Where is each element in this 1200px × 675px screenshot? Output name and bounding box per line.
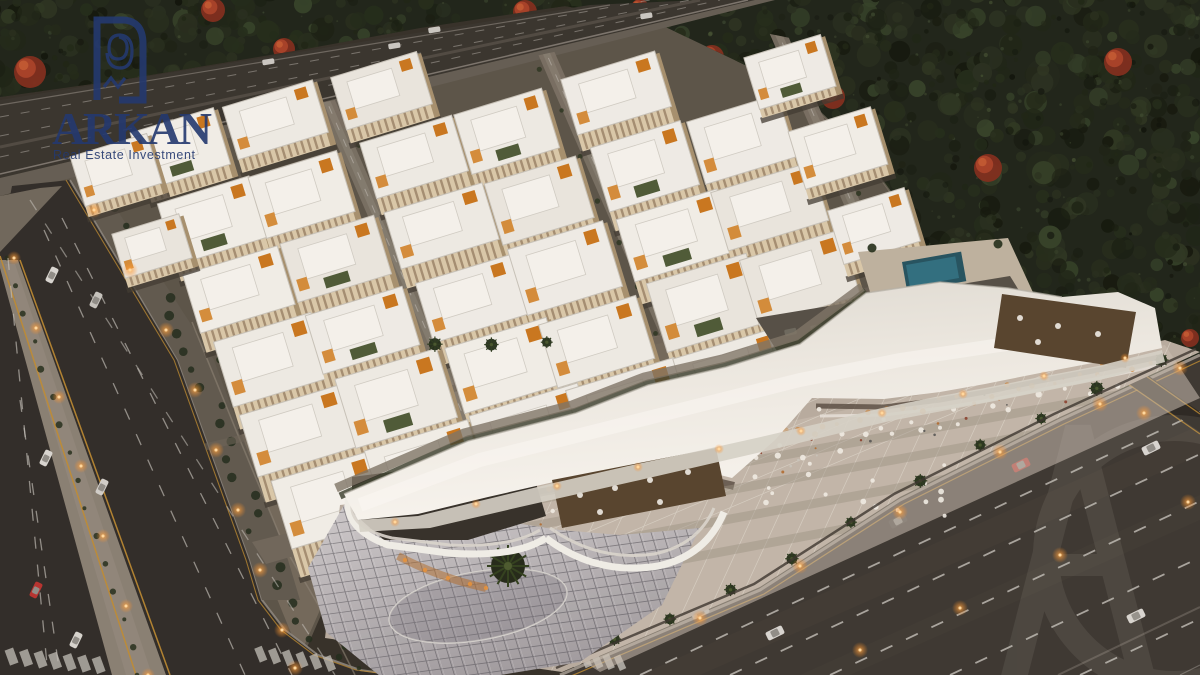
svg-text:Real Estate Investment: Real Estate Investment [53, 148, 196, 162]
svg-text:ARKAN: ARKAN [52, 103, 212, 154]
